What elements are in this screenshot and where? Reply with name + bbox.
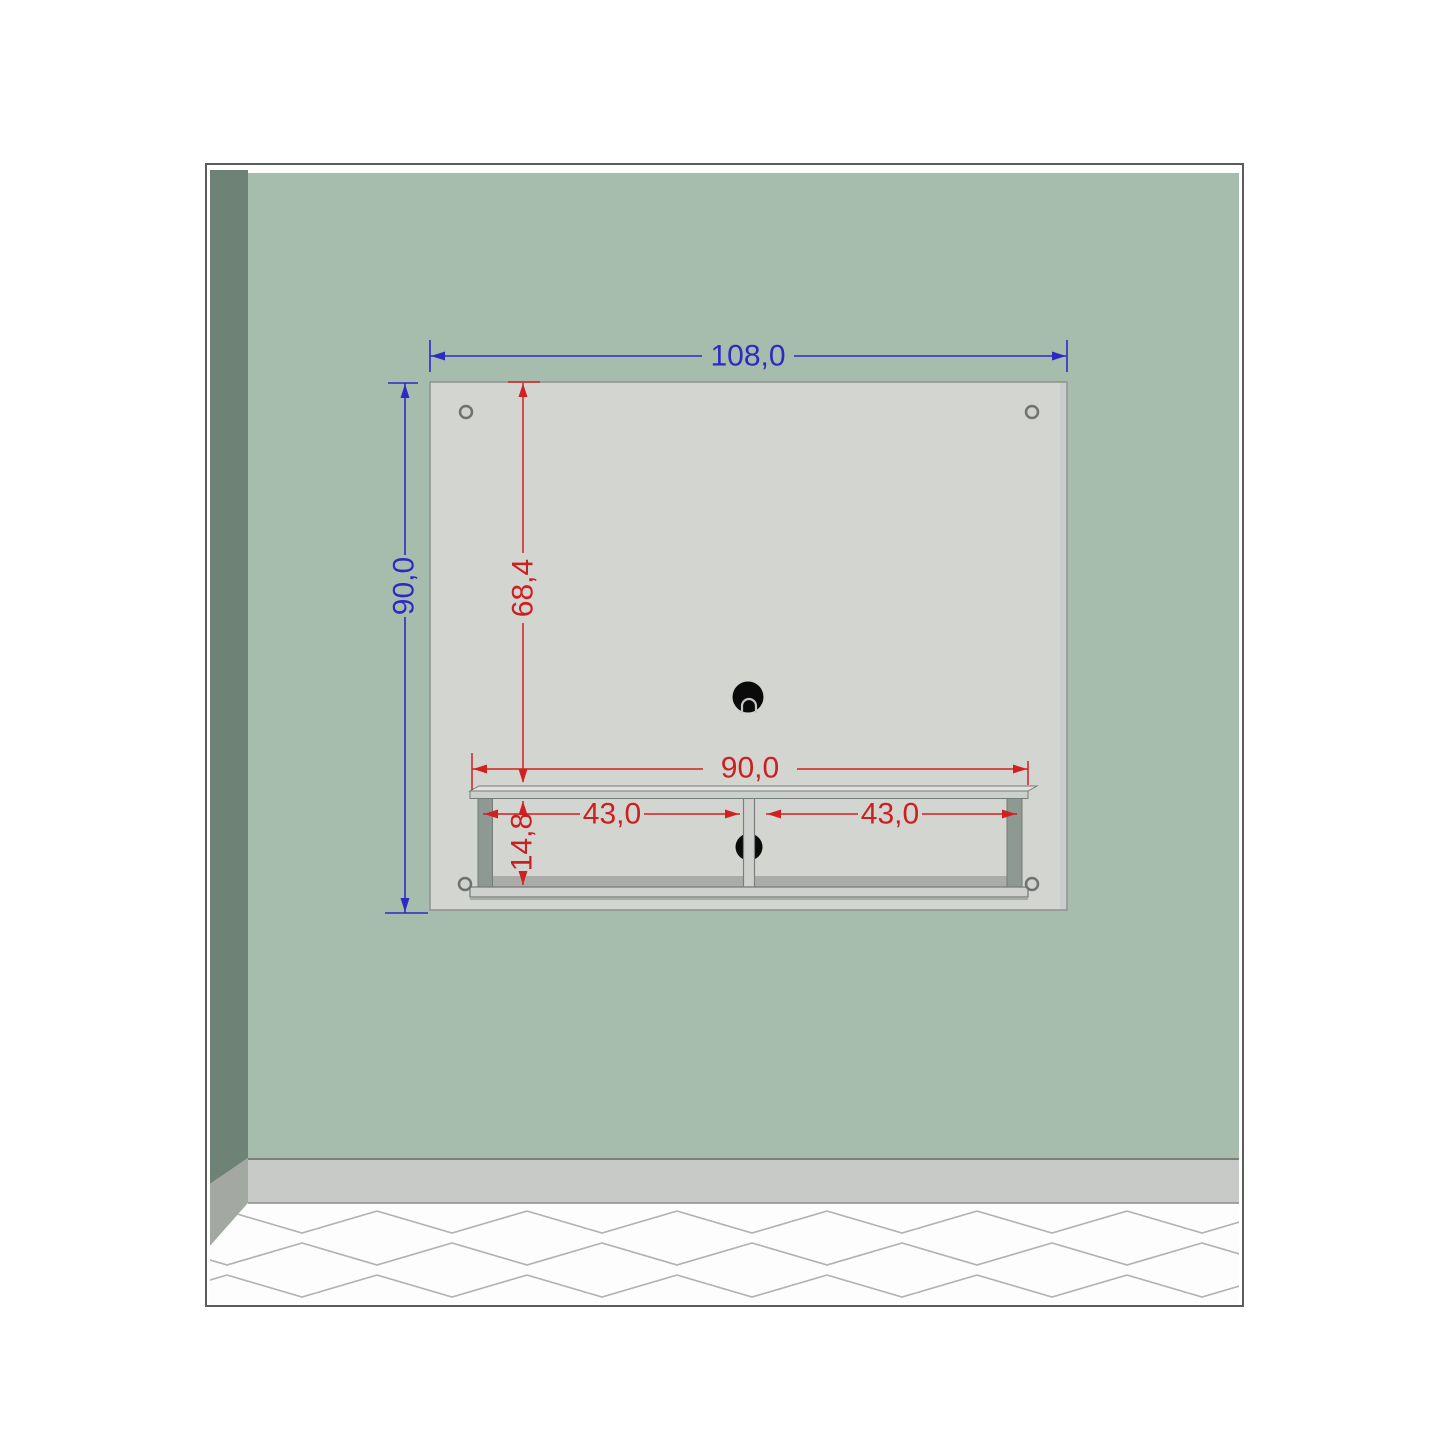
side-wall bbox=[210, 170, 248, 1184]
shelf-left-side bbox=[478, 798, 493, 887]
page: 108,0 90,0 68,4 bbox=[0, 0, 1445, 1445]
shelf-top-surface bbox=[470, 786, 1037, 791]
dim-label-top-to-shelf: 68,4 bbox=[507, 559, 540, 617]
cable-hole-circle bbox=[733, 682, 764, 713]
shelf-right-side bbox=[1007, 798, 1022, 887]
dim-label-shelf-width: 90,0 bbox=[721, 752, 779, 785]
screw-hole bbox=[460, 406, 472, 418]
dim-label-shelf-opening-height: 14,8 bbox=[506, 813, 539, 871]
shelf-bottom-board bbox=[470, 887, 1028, 897]
baseboard bbox=[248, 1158, 1239, 1203]
room-scene: 108,0 90,0 68,4 bbox=[207, 165, 1242, 1305]
floor-tile-pattern bbox=[210, 1203, 1239, 1305]
screw-hole bbox=[1026, 878, 1038, 890]
shelf-divider bbox=[744, 798, 755, 887]
scene-frame: 108,0 90,0 68,4 bbox=[205, 163, 1244, 1307]
panel-right-shade bbox=[1060, 383, 1066, 909]
dim-label-right-compartment: 43,0 bbox=[861, 798, 919, 831]
dim-label-left-compartment: 43,0 bbox=[583, 798, 641, 831]
screw-hole bbox=[459, 878, 471, 890]
dim-label-panel-width: 108,0 bbox=[710, 340, 785, 373]
shelf-top-board bbox=[470, 791, 1028, 799]
screw-hole bbox=[1026, 406, 1038, 418]
dim-label-panel-height: 90,0 bbox=[388, 557, 421, 615]
